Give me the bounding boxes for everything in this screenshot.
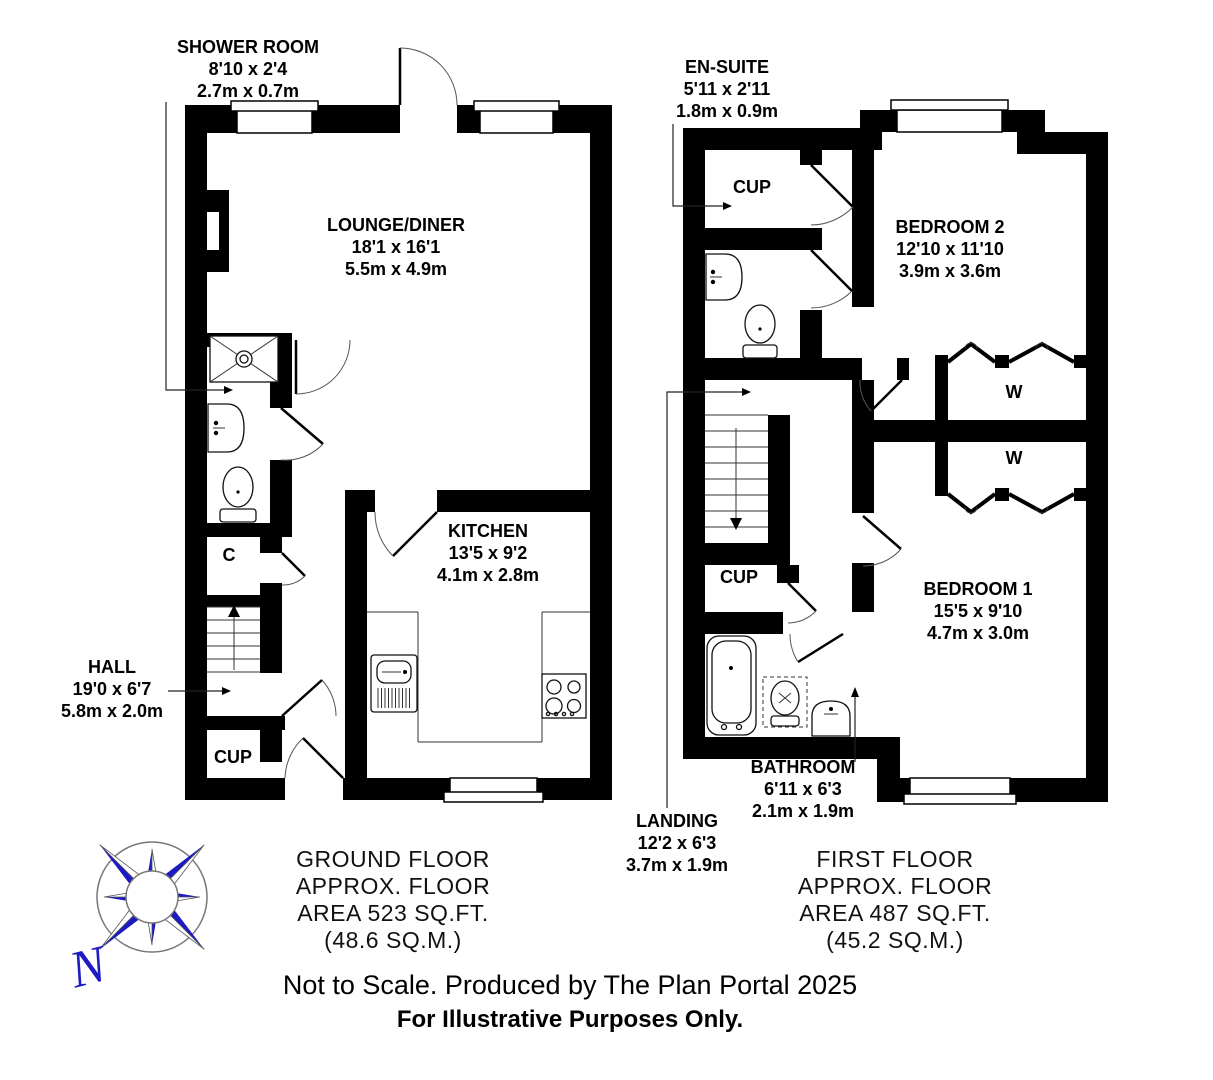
- sink-icon: [208, 404, 244, 452]
- window-icon: [231, 101, 318, 133]
- bathroom-door-icon: [790, 634, 843, 662]
- shower-room-label: SHOWER ROOM 8'10 x 2'4 2.7m x 0.7m: [177, 36, 319, 102]
- hall-label: HALL 19'0 x 6'7 5.8m x 2.0m: [61, 656, 163, 722]
- ensuite-door-icon: [811, 250, 852, 308]
- toilet-icon: [763, 677, 807, 727]
- first-floor-title: FIRST FLOOR APPROX. FLOOR AREA 487 SQ.FT…: [798, 846, 992, 954]
- bedroom1-door-icon: [863, 516, 901, 566]
- front-door-icon: [285, 738, 343, 778]
- window-icon: [904, 778, 1016, 804]
- lounge-diner-label: LOUNGE/DINER 18'1 x 16'1 5.5m x 4.9m: [327, 214, 465, 280]
- shower-room-door-icon: [281, 408, 323, 460]
- purpose-text: For Illustrative Purposes Only.: [397, 1006, 743, 1034]
- first-cupboard-top-label: CUP: [733, 176, 771, 198]
- ensuite-label: EN-SUITE 5'11 x 2'11 1.8m x 0.9m: [676, 56, 778, 122]
- toilet-icon: [220, 467, 256, 522]
- kitchen-sink-icon: [371, 655, 417, 712]
- kitchen-door-icon: [375, 512, 437, 556]
- first-cupboard-landing-label: CUP: [720, 566, 758, 588]
- bedroom1-label: BEDROOM 1 15'5 x 9'10 4.7m x 3.0m: [923, 578, 1032, 644]
- ground-floor-plan: [166, 48, 612, 802]
- floorplan-canvas: [0, 0, 1213, 1080]
- ground-cupboard-label: CUP: [214, 746, 252, 768]
- first-floor-plan: [667, 100, 1108, 808]
- hob-icon: [542, 674, 586, 718]
- toilet-icon: [743, 305, 777, 358]
- kitchen-label: KITCHEN 13'5 x 9'2 4.1m x 2.8m: [437, 520, 539, 586]
- bath-icon: [707, 636, 756, 735]
- sink-icon: [812, 701, 850, 736]
- cupboard-door-icon: [811, 165, 853, 225]
- landing-cupboard-door-icon: [788, 583, 816, 623]
- floorplan-page: SHOWER ROOM 8'10 x 2'4 2.7m x 0.7m LOUNG…: [0, 0, 1213, 1080]
- stairs-down-icon: [705, 415, 768, 530]
- stairs-up-icon: [207, 605, 260, 672]
- compass-rose: [93, 838, 212, 957]
- entrance-door-icon: [400, 48, 457, 105]
- cupboard-door-icon: [282, 680, 336, 716]
- bedroom2-label: BEDROOM 2 12'10 x 11'10 3.9m x 3.6m: [895, 216, 1004, 282]
- window-icon: [891, 100, 1008, 132]
- window-icon: [474, 101, 559, 133]
- sink-icon: [706, 254, 742, 300]
- closet-door-icon: [282, 553, 305, 585]
- ground-floor-title: GROUND FLOOR APPROX. FLOOR AREA 523 SQ.F…: [296, 846, 490, 954]
- ground-closet-label: C: [223, 544, 236, 566]
- wardrobe1-label: W: [1006, 381, 1023, 403]
- lounge-hall-door-icon: [296, 340, 350, 394]
- disclaimer-text: Not to Scale. Produced by The Plan Porta…: [283, 970, 857, 1001]
- window-icon: [444, 778, 543, 802]
- shower-tray-icon: [210, 336, 278, 382]
- bathroom-label: BATHROOM 6'11 x 6'3 2.1m x 1.9m: [751, 756, 856, 822]
- chimney-breast: [207, 190, 229, 272]
- wardrobe2-label: W: [1006, 447, 1023, 469]
- landing-label: LANDING 12'2 x 6'3 3.7m x 1.9m: [626, 810, 728, 876]
